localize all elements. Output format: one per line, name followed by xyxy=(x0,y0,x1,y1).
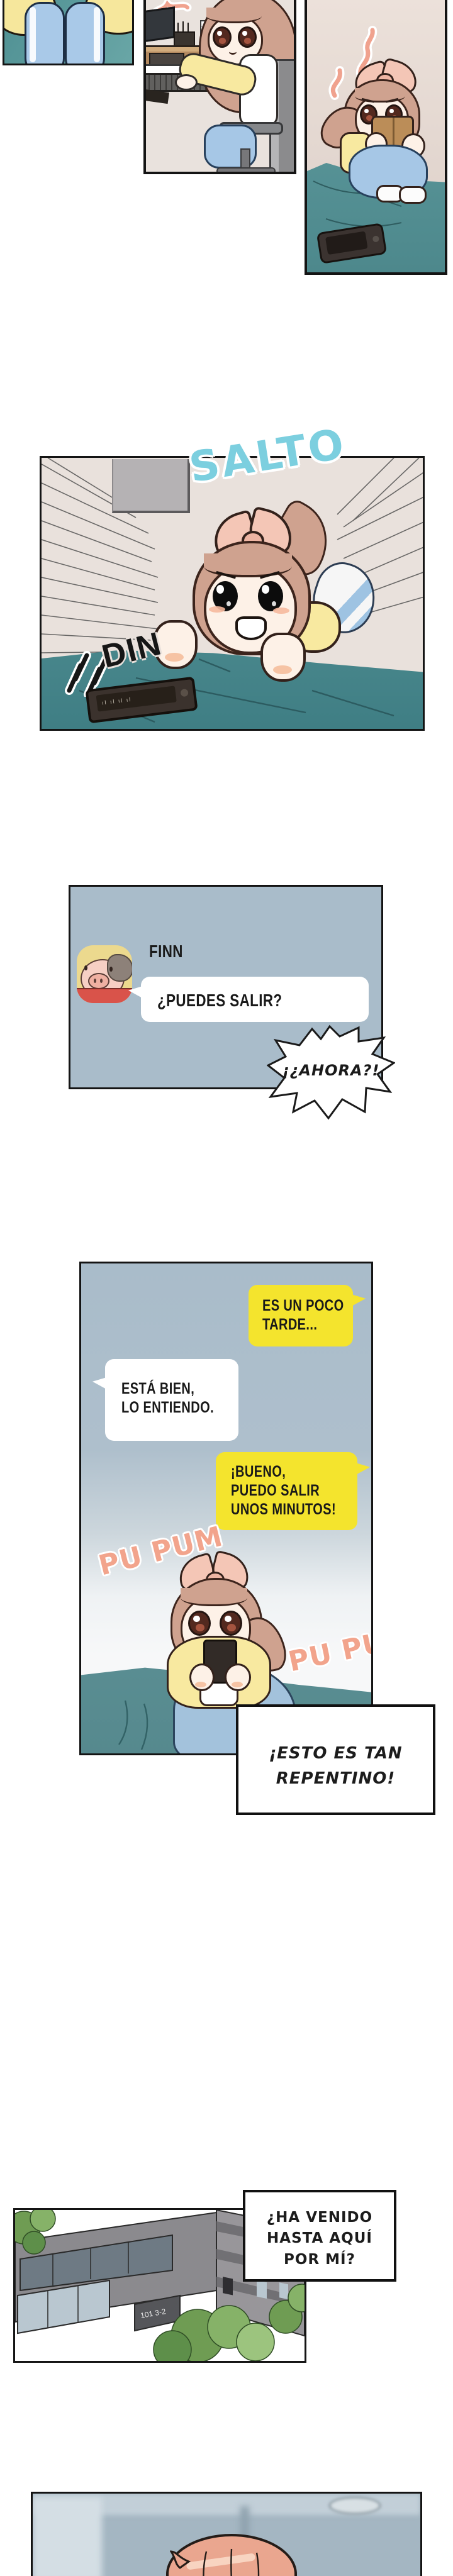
caption-came: ¿HA VENIDO HASTA AQUÍ POR MÍ? xyxy=(243,2190,396,2282)
girl-hand xyxy=(175,74,198,91)
girl-mouth xyxy=(229,49,237,55)
panel-chat-conversation: ES UN POCO TARDE... ESTÁ BIEN, LO ENTIEN… xyxy=(79,1262,373,1755)
girl-bangs xyxy=(206,8,262,23)
bubble-ok-line2: LO ENTIENDO. xyxy=(121,1398,214,1417)
reaction-text: ¡¿AHORA?! xyxy=(282,1062,380,1079)
contact-name-label: FINN xyxy=(149,941,183,962)
caption-sudden-line1: ¡ESTO ES TAN xyxy=(238,1741,433,1766)
girl-bangs xyxy=(181,1588,247,1606)
avatar xyxy=(77,945,132,1003)
panel-interior xyxy=(31,2492,422,2576)
bubble-ok: ESTÁ BIEN, LO ENTIENDO. xyxy=(105,1359,238,1441)
bubble-tail xyxy=(92,1377,109,1391)
girl-eye-right xyxy=(238,26,257,48)
girl-eye-left xyxy=(213,26,232,48)
bubble-late-line2: TARDE... xyxy=(262,1315,344,1334)
webtoon-page: DIN ıl ıl ıl ıl SALTO FINN ¿PUEDES SA xyxy=(0,0,453,2576)
caption-sudden-line2: REPENTINO! xyxy=(238,1766,433,1791)
caption-came-line2: HASTA AQUÍ xyxy=(245,2228,394,2249)
panel-bedroom xyxy=(305,0,447,275)
ceiling-light xyxy=(328,2496,381,2515)
panel-legs xyxy=(3,0,134,65)
caption-came-line3: POR MÍ? xyxy=(245,2250,394,2270)
girl-eye-right xyxy=(258,581,283,611)
bubble-out-line1: ¡BUENO, xyxy=(231,1462,336,1481)
girl-eye-right xyxy=(220,1611,242,1636)
bubble-late-line1: ES UN POCO xyxy=(262,1296,344,1315)
message-text: ¿PUEDES SALIR? xyxy=(157,990,282,1011)
reaction-text-wrap: ¡¿AHORA?! xyxy=(267,1062,395,1079)
pig-snout xyxy=(88,973,109,989)
bubble-out-line2: PUEDO SALIR xyxy=(231,1481,336,1500)
girl-blush xyxy=(273,608,289,614)
pig-shirt xyxy=(77,988,132,1003)
bubble-out-line3: UNOS MINUTOS! xyxy=(231,1500,336,1519)
panel-salto: DIN ıl ıl ıl ıl xyxy=(40,456,425,731)
caption-came-line1: ¿HA VENIDO xyxy=(245,2207,394,2228)
girl-hand-right xyxy=(260,633,306,682)
leg-highlight xyxy=(94,7,100,62)
message-bubble: ¿PUEDES SALIR? xyxy=(141,977,369,1022)
girl-blush xyxy=(209,606,225,613)
girl-head-back xyxy=(166,2534,297,2576)
panel-computer-desk xyxy=(143,0,296,174)
sfx-pu-pum-2: PU PUM xyxy=(286,1621,373,1679)
bubble-ok-line1: ESTÁ BIEN, xyxy=(121,1379,214,1398)
contact-name: FINN xyxy=(149,941,191,962)
girl-mouth xyxy=(235,616,267,640)
girl-shoe xyxy=(399,186,427,204)
bubble-late: ES UN POCO TARDE... xyxy=(249,1285,353,1346)
room-window xyxy=(33,2497,102,2576)
girl-hand xyxy=(225,1663,251,1691)
girl-hand xyxy=(189,1663,215,1691)
bubble-out: ¡BUENO, PUEDO SALIR UNOS MINUTOS! xyxy=(216,1452,357,1530)
caption-sudden: ¡ESTO ES TAN REPENTINO! xyxy=(236,1704,435,1815)
wall-window xyxy=(112,459,190,513)
router xyxy=(174,31,195,47)
girl-eye-left xyxy=(188,1611,211,1636)
chair-base xyxy=(216,167,276,174)
leg-highlight xyxy=(30,7,36,62)
monitor xyxy=(143,6,175,43)
